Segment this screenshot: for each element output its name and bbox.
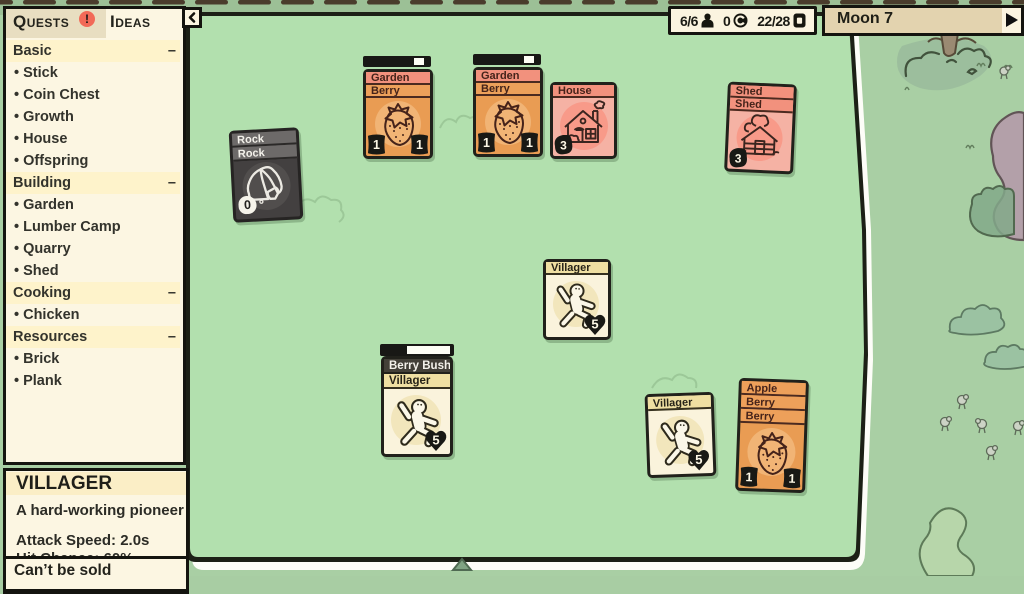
svg-text:3: 3 bbox=[735, 151, 743, 165]
svg-text:3: 3 bbox=[560, 139, 567, 153]
